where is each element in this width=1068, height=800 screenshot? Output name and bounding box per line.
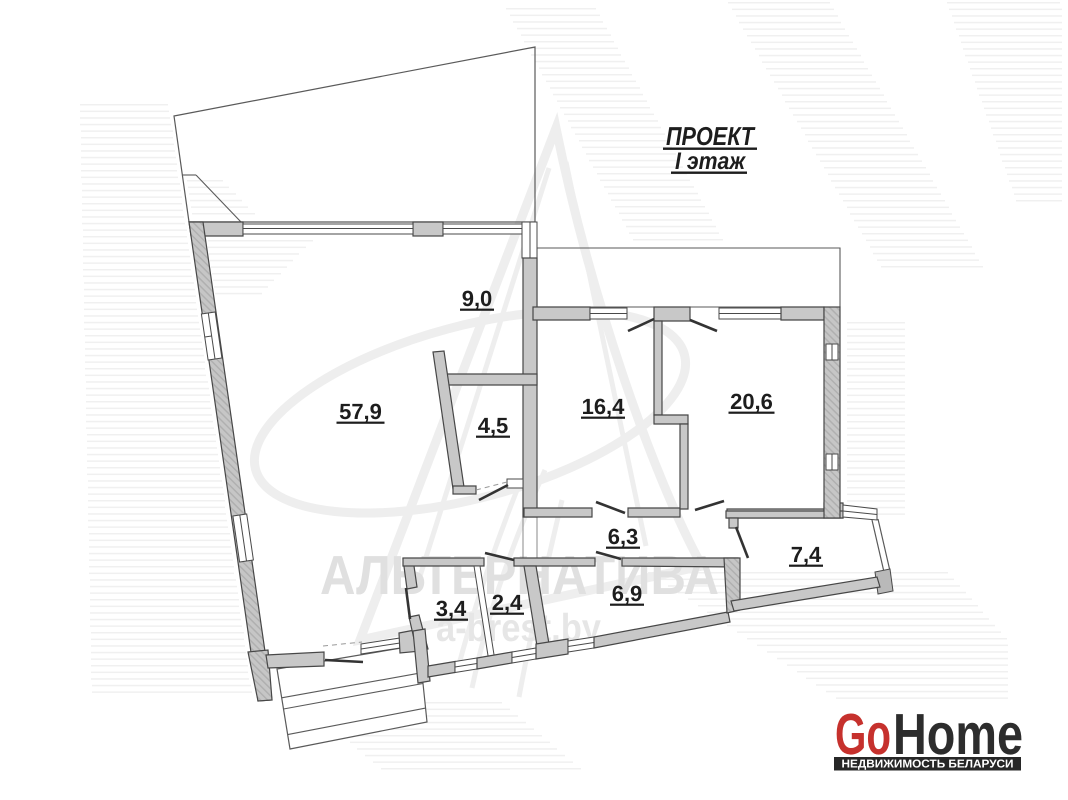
svg-text:6,9: 6,9 xyxy=(612,581,643,606)
svg-text:3,4: 3,4 xyxy=(436,596,467,621)
svg-text:2,4: 2,4 xyxy=(492,590,523,615)
svg-text:ПРОЕКТ: ПРОЕКТ xyxy=(666,121,756,151)
svg-text:6,3: 6,3 xyxy=(608,524,639,549)
svg-text:16,4: 16,4 xyxy=(582,394,626,419)
svg-text:НЕДВИЖИМОСТЬ БЕЛАРУСИ: НЕДВИЖИМОСТЬ БЕЛАРУСИ xyxy=(842,759,1014,771)
svg-text:I этаж: I этаж xyxy=(675,148,746,175)
svg-text:7,4: 7,4 xyxy=(791,542,822,567)
svg-text:9,0: 9,0 xyxy=(462,286,493,311)
svg-text:20,6: 20,6 xyxy=(730,389,773,414)
svg-text:4,5: 4,5 xyxy=(478,413,509,438)
svg-text:57,9: 57,9 xyxy=(339,399,382,424)
